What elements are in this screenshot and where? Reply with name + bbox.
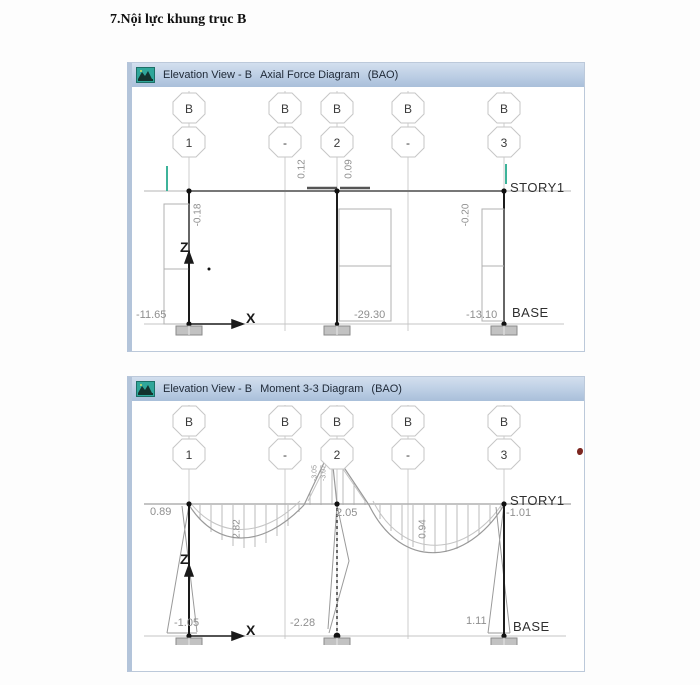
- z-axis-label: Z: [180, 551, 189, 567]
- peak-moment-value-2: -3.07: [321, 465, 328, 481]
- base-axial-value-2: -29.30: [354, 309, 385, 321]
- grid-bubble-b4: B: [391, 405, 425, 437]
- grid-bubble-b3: B: [320, 405, 354, 437]
- grid-bubble-2: 2: [320, 126, 354, 158]
- beam-axial-value-right: 0.09: [344, 159, 355, 178]
- story-label: STORY1: [510, 180, 565, 195]
- support-pads: [176, 638, 517, 645]
- window-moment-33: Elevation View - B Moment 3-3 Diagram (B…: [127, 376, 585, 672]
- z-axis-label: Z: [180, 239, 189, 255]
- svg-text:-: -: [406, 448, 410, 462]
- grid-bubble-b3: B: [320, 92, 354, 124]
- elevation-view-icon: [136, 67, 155, 83]
- grid-bubble-b1: B: [172, 92, 206, 124]
- svg-text:3: 3: [501, 136, 508, 150]
- svg-text:B: B: [281, 102, 289, 116]
- column-axial-value-left: -0.18: [193, 204, 204, 227]
- columns: [189, 191, 504, 324]
- svg-text:B: B: [185, 415, 193, 429]
- svg-text:B: B: [404, 415, 412, 429]
- column-moment-diagrams: [167, 505, 510, 633]
- svg-text:B: B: [185, 102, 193, 116]
- base-label: BASE: [513, 619, 550, 634]
- grid-bubble-1: 1: [172, 126, 206, 158]
- svg-text:B: B: [404, 102, 412, 116]
- svg-text:B: B: [333, 415, 341, 429]
- svg-text:B: B: [281, 415, 289, 429]
- grid-bubble-b2: B: [268, 405, 302, 437]
- grid-bubble-dash1: -: [268, 126, 302, 158]
- svg-text:1: 1: [186, 448, 193, 462]
- window-title-combo: (BAO): [368, 69, 399, 81]
- window-title-diagram: Axial Force Diagram: [260, 69, 360, 81]
- grid-bubble-dash2: -: [391, 438, 425, 470]
- svg-text:2: 2: [334, 448, 341, 462]
- peak-moment-value-1: -3.05: [312, 465, 319, 481]
- window-title-view: Elevation View - B: [163, 69, 252, 81]
- grid-bubble-1: 1: [172, 438, 206, 470]
- svg-text:B: B: [500, 415, 508, 429]
- grid-bubble-b2: B: [268, 92, 302, 124]
- column-axial-diagrams: [164, 204, 504, 324]
- grid-bubble-3: 3: [487, 126, 521, 158]
- x-axis-label: X: [246, 310, 255, 326]
- grid-bubble-dash2: -: [391, 126, 425, 158]
- story-label: STORY1: [510, 493, 565, 508]
- grid-bubble-b5: B: [487, 405, 521, 437]
- window-titlebar[interactable]: Elevation View - B Axial Force Diagram (…: [132, 63, 584, 87]
- svg-text:-: -: [283, 448, 287, 462]
- base-moment-value-2: -2.28: [290, 617, 315, 629]
- svg-text:B: B: [333, 102, 341, 116]
- page-title: 7.Nội lực khung trục B: [110, 12, 246, 28]
- base-moment-value-3: 1.11: [466, 615, 487, 627]
- axes-arrows: [185, 252, 243, 328]
- svg-text:-: -: [283, 136, 287, 150]
- svg-text:-: -: [406, 136, 410, 150]
- base-label: BASE: [512, 305, 549, 320]
- span-moment-value-right: 0.94: [418, 519, 429, 538]
- svg-text:1: 1: [186, 136, 193, 150]
- story-moment-value-3: -1.01: [506, 507, 531, 519]
- x-axis-label: X: [246, 622, 255, 638]
- grid-bubble-dash1: -: [268, 438, 302, 470]
- base-axial-value-3: -13.10: [466, 309, 497, 321]
- grid-bubble-b4: B: [391, 92, 425, 124]
- grid-bubble-3: 3: [487, 438, 521, 470]
- story-moment-value-1: 0.89: [150, 506, 171, 518]
- span-moment-value-left: 2.82: [232, 519, 243, 538]
- beam-axial-value-left: 0.12: [297, 159, 308, 178]
- grid-bubble-b1: B: [172, 405, 206, 437]
- document-page: 7.Nội lực khung trục B Elevation View - …: [0, 0, 700, 685]
- window-axial-force: Elevation View - B Axial Force Diagram (…: [127, 62, 585, 352]
- column-axial-value-right: -0.20: [461, 204, 472, 227]
- base-axial-value-1: -11.65: [136, 309, 166, 321]
- svg-text:2: 2: [334, 136, 341, 150]
- grid-bubble-b5: B: [487, 92, 521, 124]
- svg-text:3: 3: [501, 448, 508, 462]
- base-moment-value-1: -1.05: [174, 617, 199, 629]
- story-moment-value-2: 2.05: [336, 507, 357, 519]
- svg-text:B: B: [500, 102, 508, 116]
- support-pads: [176, 326, 517, 335]
